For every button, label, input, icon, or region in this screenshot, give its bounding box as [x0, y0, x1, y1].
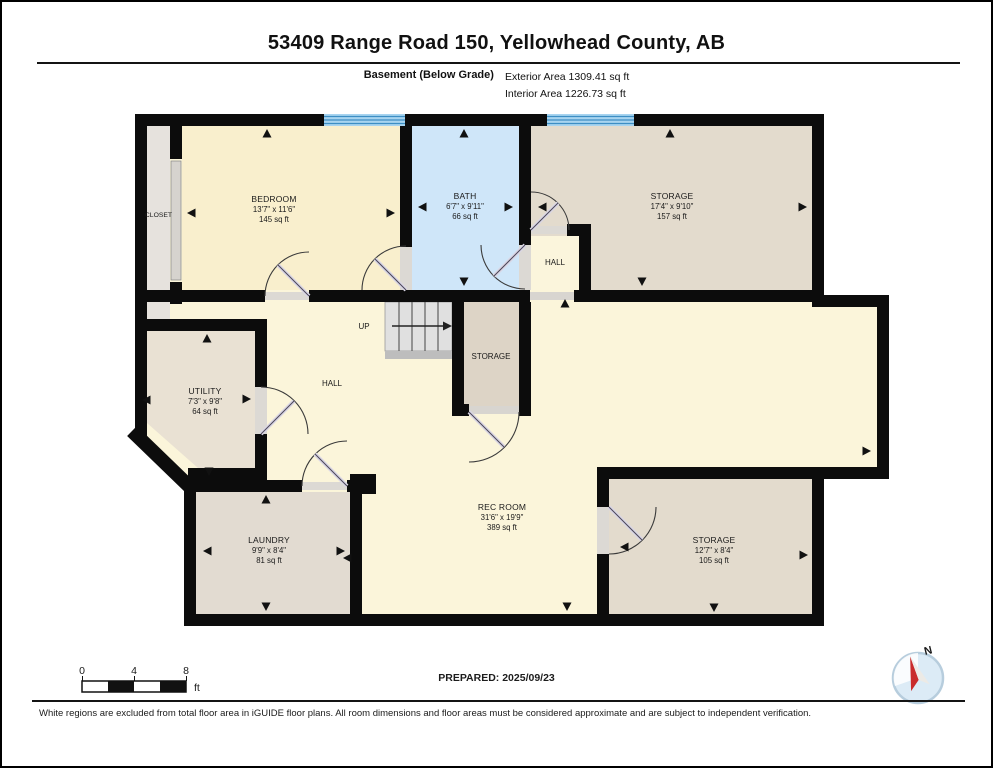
label-closet: CLOSET — [145, 212, 172, 219]
svg-text:31'6" x 19'9": 31'6" x 19'9" — [481, 513, 524, 522]
disclaimer-text: White regions are excluded from total fl… — [39, 708, 959, 719]
window-storage — [547, 114, 634, 126]
svg-text:64 sq ft: 64 sq ft — [192, 407, 218, 416]
prepared-date: PREPARED: 2025/09/23 — [2, 672, 991, 684]
svg-text:145 sq ft: 145 sq ft — [259, 215, 290, 224]
label-utility: UTILITY — [188, 386, 221, 396]
footer-divider — [32, 700, 965, 702]
compass-north-label: N — [923, 644, 934, 658]
svg-text:105 sq ft: 105 sq ft — [699, 556, 730, 565]
floor-plan-page: 53409 Range Road 150, Yellowhead County,… — [0, 0, 993, 768]
svg-text:6'7" x 9'11": 6'7" x 9'11" — [446, 202, 484, 211]
label-laundry: LAUNDRY — [248, 535, 290, 545]
label-hall-upper: HALL — [545, 258, 566, 267]
svg-text:17'4" x 9'10": 17'4" x 9'10" — [651, 202, 694, 211]
label-rec-room: REC ROOM — [478, 502, 526, 512]
label-storage-top-right: STORAGE — [651, 191, 694, 201]
svg-text:13'7" x 11'6": 13'7" x 11'6" — [253, 205, 295, 214]
svg-text:389 sq ft: 389 sq ft — [487, 523, 518, 532]
label-storage-bottom-right: STORAGE — [693, 535, 736, 545]
floor-plan-drawing: CLOSET BEDROOM 13'7" x 11'6" 145 sq ft B… — [2, 2, 993, 768]
label-hall-main: HALL — [322, 379, 343, 388]
svg-text:66 sq ft: 66 sq ft — [452, 212, 478, 221]
label-storage-middle: STORAGE — [472, 352, 511, 361]
stairs — [385, 302, 452, 359]
svg-text:9'9" x 8'4": 9'9" x 8'4" — [252, 546, 286, 555]
svg-text:7'3" x 9'8": 7'3" x 9'8" — [188, 397, 222, 406]
svg-text:81 sq ft: 81 sq ft — [256, 556, 282, 565]
label-bath: BATH — [454, 191, 477, 201]
closet-door-panel — [171, 161, 181, 280]
window-bedroom — [324, 114, 405, 126]
label-stairs-up: UP — [358, 322, 369, 331]
svg-text:157 sq ft: 157 sq ft — [657, 212, 688, 221]
label-bedroom: BEDROOM — [251, 194, 296, 204]
svg-text:12'7" x 8'4": 12'7" x 8'4" — [695, 546, 734, 555]
room-fills — [135, 114, 889, 626]
